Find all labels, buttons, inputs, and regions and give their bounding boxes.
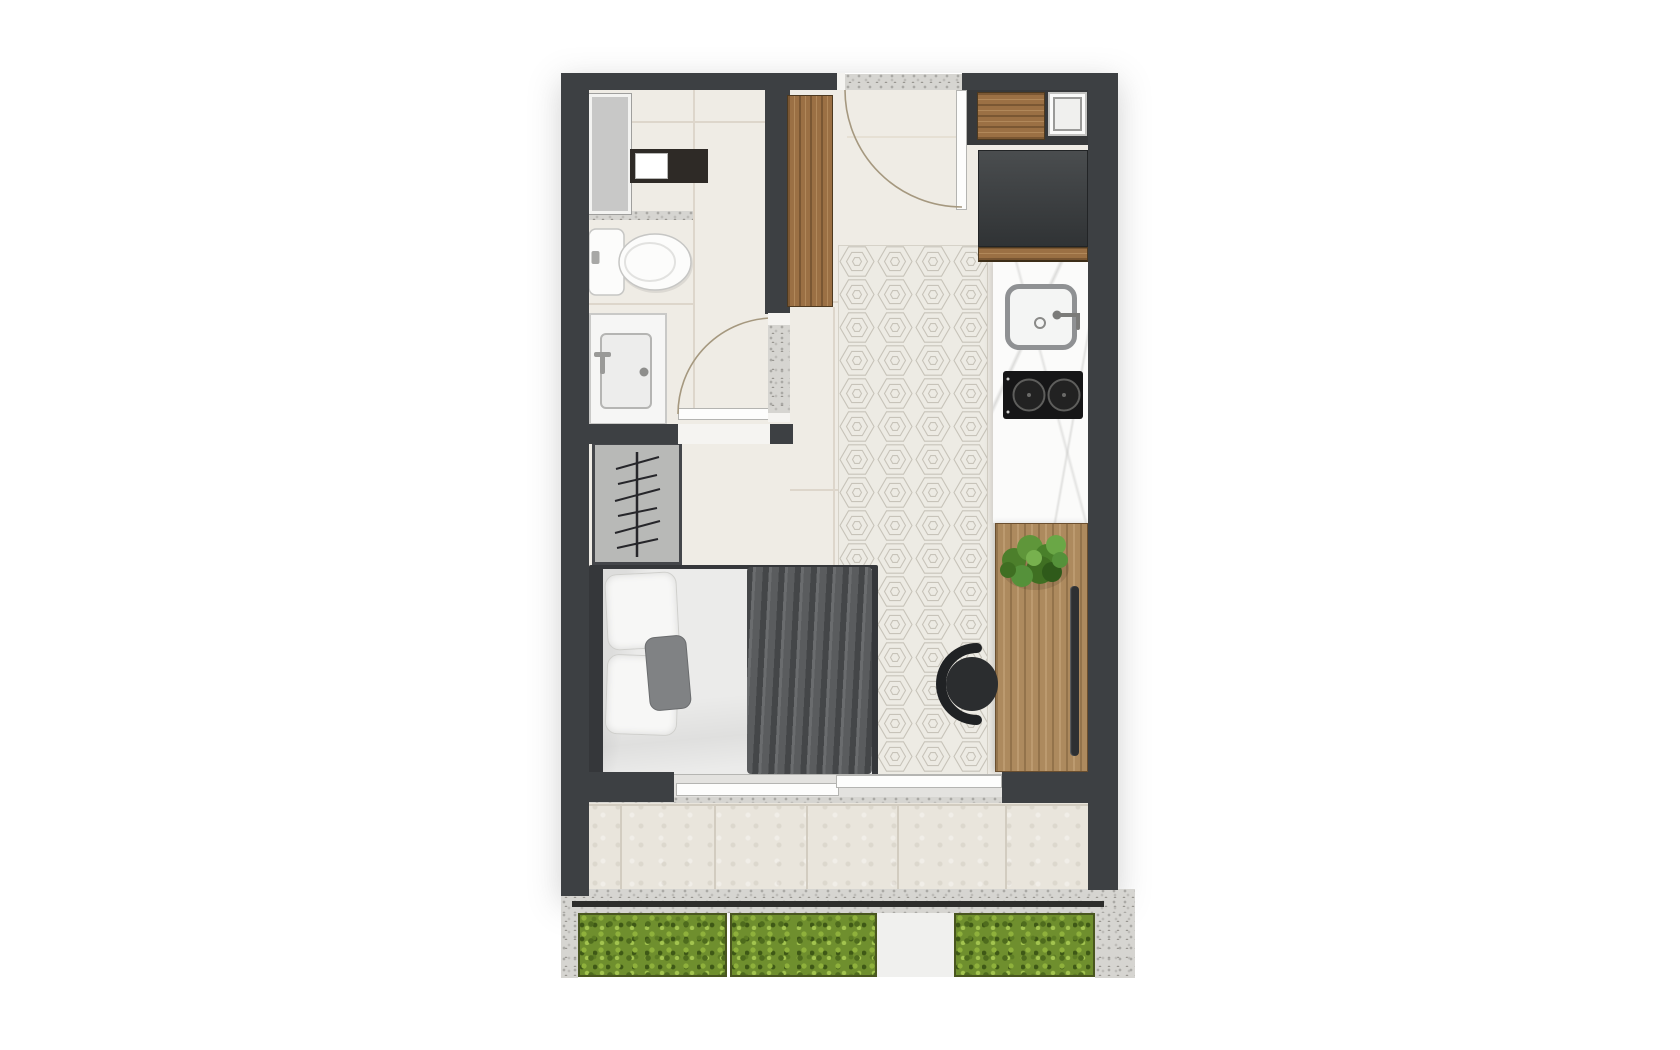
floor-plan [0, 0, 1680, 1050]
closet-hangers [615, 452, 660, 557]
wall-shaft [768, 325, 790, 413]
cooktop-burners [1007, 378, 1080, 414]
kitchen-faucet [1035, 311, 1078, 329]
wall-cap [768, 313, 790, 325]
wall-right [1088, 73, 1118, 890]
wall-top-left [561, 73, 837, 90]
bathroom-door-swing [678, 318, 774, 414]
wall-bathroom-south-right [770, 424, 793, 444]
detail-layer [0, 0, 1680, 1050]
wardrobe-panel [787, 95, 833, 307]
desk-chair [941, 648, 998, 720]
wall-bathroom-south-left [561, 424, 678, 444]
entry-door-swing [845, 90, 962, 207]
wall-south-left [561, 772, 674, 802]
vanity-faucet [594, 352, 649, 377]
potted-plant [1000, 535, 1069, 590]
toilet [589, 229, 693, 295]
wall-cap [768, 413, 790, 422]
wall-south-right [1002, 772, 1118, 803]
